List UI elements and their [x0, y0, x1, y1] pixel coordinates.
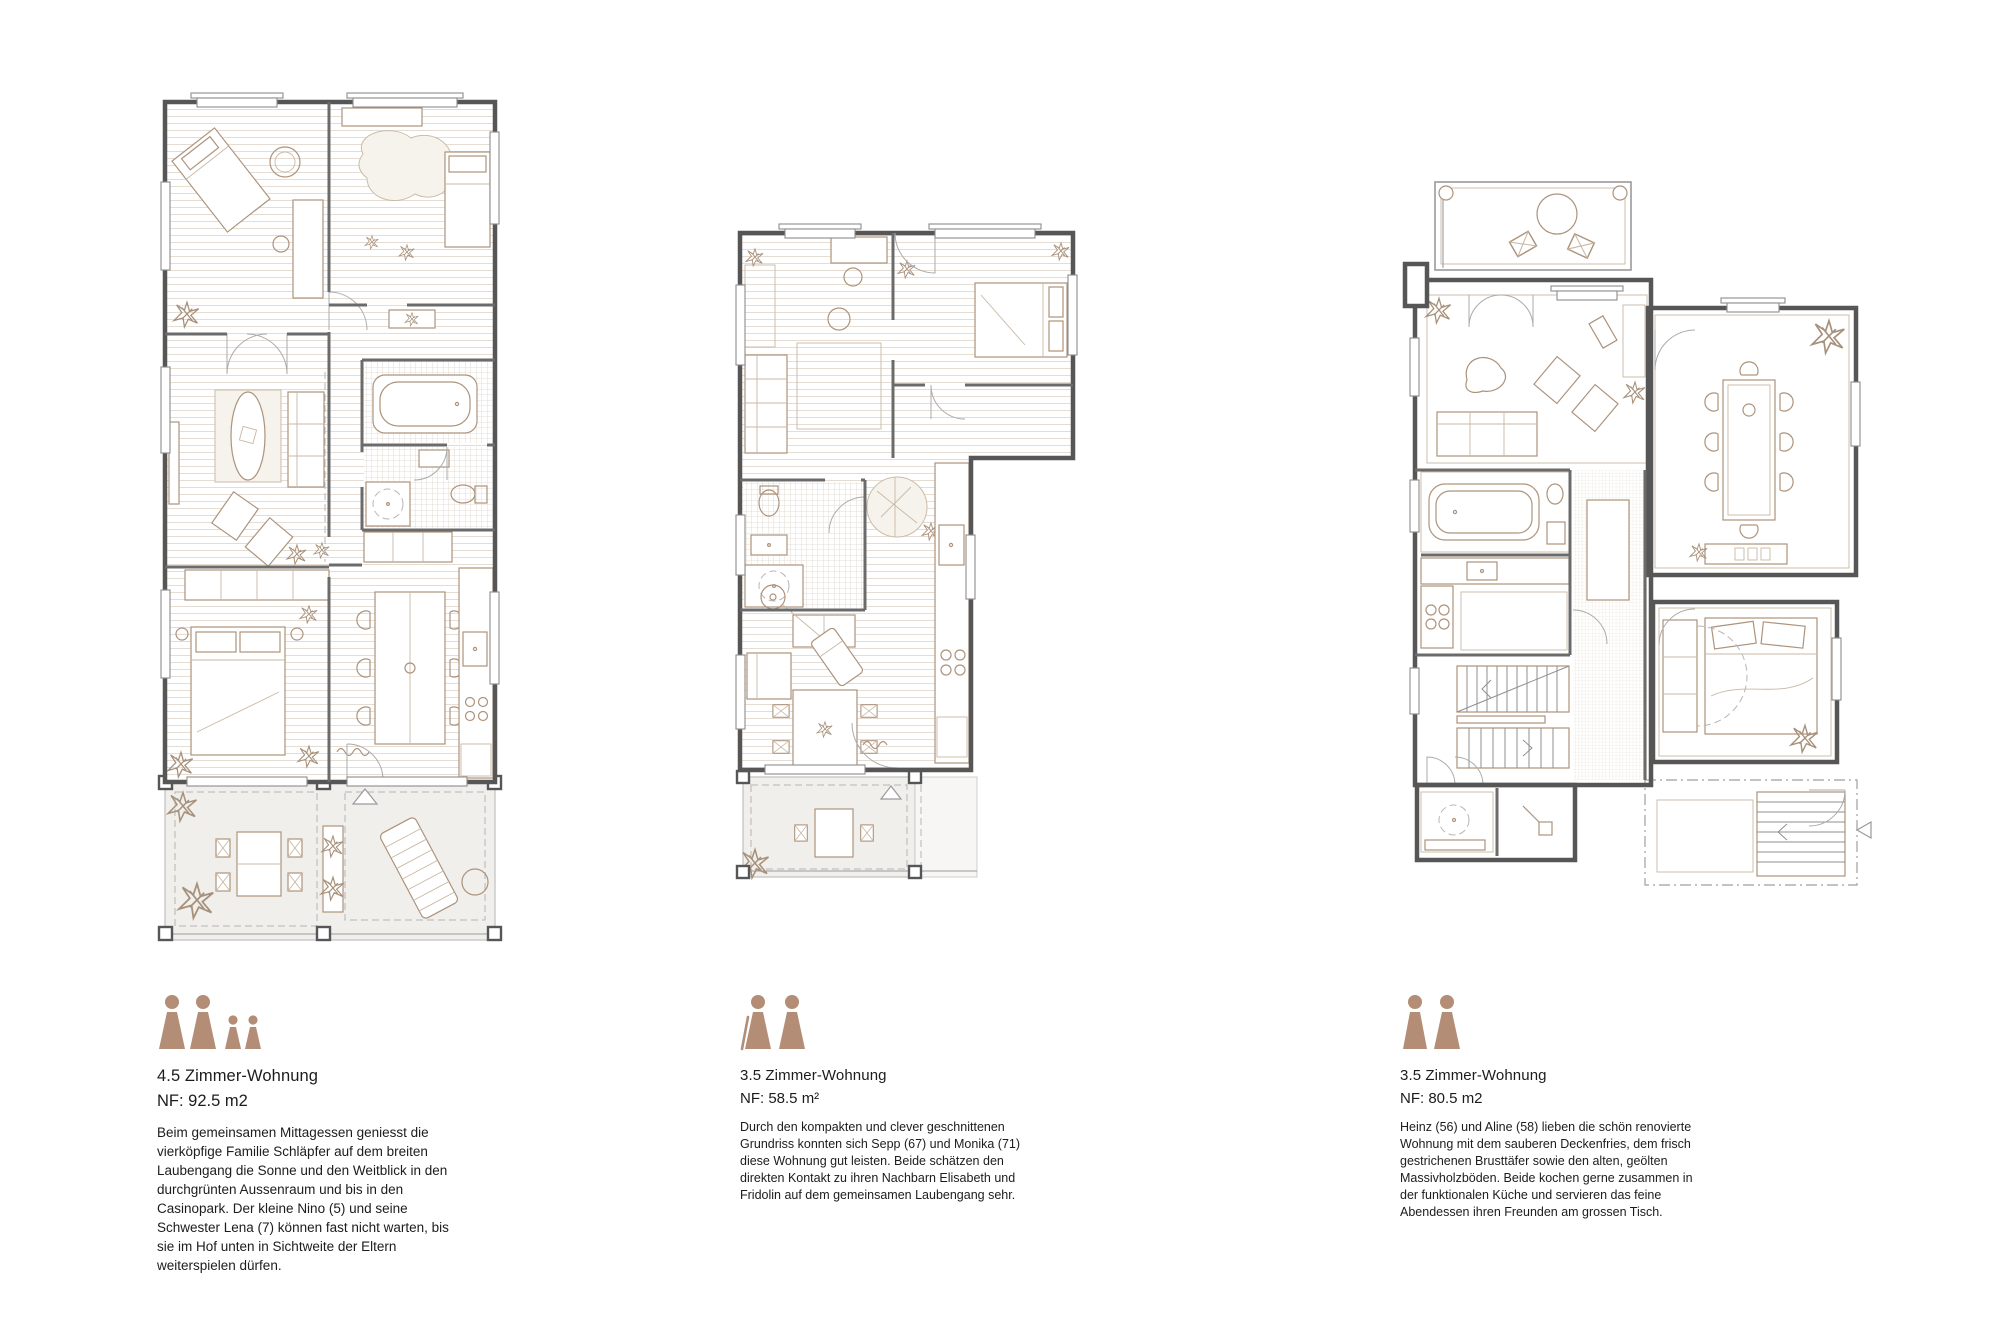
occupant-icons — [740, 993, 1042, 1051]
top-balcony — [1435, 182, 1631, 270]
desk — [831, 237, 887, 263]
adult-person-icon — [159, 995, 185, 1049]
occupant-icons — [157, 993, 469, 1051]
elderly-person-icon — [742, 995, 771, 1049]
child-person-icon — [225, 1015, 241, 1049]
sofa — [745, 355, 787, 453]
adult-person-icon — [779, 995, 805, 1049]
floor-plan-unit-3 — [1405, 140, 1875, 915]
balcony-laubengang — [159, 776, 501, 940]
adult-person-icon — [1434, 995, 1460, 1049]
unit-column-3: 3.5 Zimmer-Wohnung NF: 80.5 m2 Heinz (56… — [1400, 993, 1702, 1221]
room-bathroom — [743, 482, 865, 609]
occupant-icons — [1400, 993, 1702, 1051]
unit-description: Heinz (56) und Aline (58) lieben die sch… — [1400, 1119, 1702, 1221]
kitchen-counter — [459, 568, 493, 778]
unit-description: Beim gemeinsamen Mittagessen geniesst di… — [157, 1123, 469, 1275]
unit-area: NF: 80.5 m2 — [1400, 1090, 1702, 1107]
adult-person-icon — [190, 995, 216, 1049]
sofa — [1437, 412, 1537, 456]
hallway — [1573, 470, 1647, 780]
entry-terrace — [1645, 780, 1871, 885]
balcony-laubengang — [737, 771, 977, 878]
sofa — [288, 392, 324, 487]
brochure-page: 4.5 Zimmer-Wohnung NF: 92.5 m2 Beim geme… — [0, 0, 2000, 1333]
entry-marker — [1857, 822, 1871, 838]
unit-column-1: 4.5 Zimmer-Wohnung NF: 92.5 m2 Beim geme… — [157, 993, 469, 1275]
unit-title: 4.5 Zimmer-Wohnung — [157, 1067, 469, 1086]
unit-title: 3.5 Zimmer-Wohnung — [740, 1067, 1042, 1084]
sideboard — [1705, 544, 1787, 564]
floor-plan-unit-2 — [735, 225, 1080, 885]
room-bathroom-tub — [373, 375, 477, 433]
floor-plan-unit-1 — [157, 92, 503, 948]
unit-description: Durch den kompakten und clever geschnitt… — [740, 1119, 1042, 1204]
wardrobe — [1663, 620, 1697, 732]
kitchen-counter — [935, 463, 969, 763]
adult-person-icon — [1403, 995, 1427, 1049]
child-person-icon — [245, 1015, 261, 1049]
unit-title: 3.5 Zimmer-Wohnung — [1400, 1067, 1702, 1084]
unit-column-2: 3.5 Zimmer-Wohnung NF: 58.5 m² Durch den… — [740, 993, 1042, 1204]
unit-area: NF: 92.5 m2 — [157, 1092, 469, 1111]
unit-area: NF: 58.5 m² — [740, 1090, 1042, 1107]
